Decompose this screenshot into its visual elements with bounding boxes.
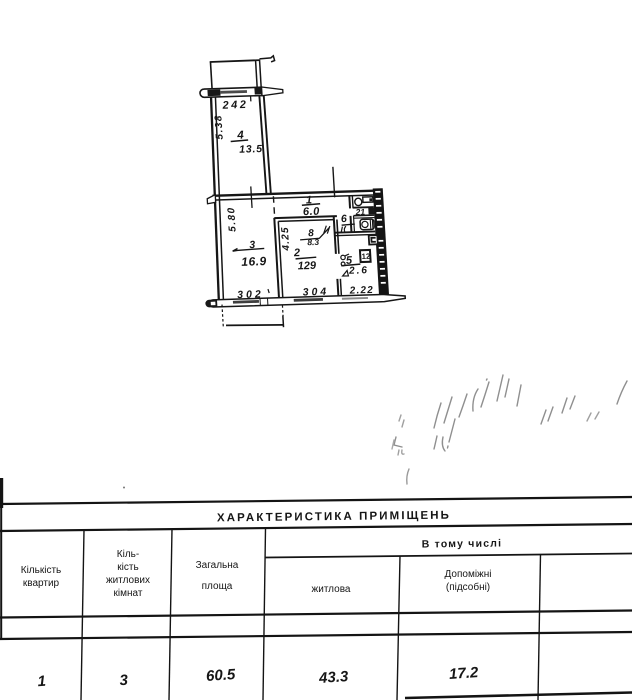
svg-text:6: 6 — [341, 213, 348, 225]
svg-text:13.5: 13.5 — [239, 143, 263, 156]
svg-text:житлова: житлова — [312, 584, 351, 595]
svg-text:3: 3 — [119, 672, 129, 690]
svg-text:Допоміжні: Допоміжні — [445, 569, 492, 580]
svg-text:2.6: 2.6 — [348, 265, 370, 277]
svg-text:кість: кість — [117, 562, 138, 573]
svg-text:5.80: 5.80 — [226, 206, 238, 232]
svg-text:242: 242 — [221, 99, 249, 112]
svg-text:2: 2 — [293, 247, 301, 259]
svg-text:129: 129 — [297, 260, 317, 273]
svg-text:2.22: 2.22 — [348, 285, 374, 297]
svg-text:21: 21 — [354, 207, 365, 217]
svg-text:4.25: 4.25 — [280, 226, 292, 252]
svg-text:(підсобні): (підсобні) — [446, 581, 490, 593]
svg-text:житлових: житлових — [106, 575, 150, 586]
svg-text:кімнат: кімнат — [114, 588, 143, 599]
svg-text:Кіль-: Кіль- — [117, 549, 139, 560]
svg-text:Кількість: Кількість — [21, 565, 61, 576]
svg-text:ХАРАКТЕРИСТИКА ПРИМІЩЕНЬ: ХАРАКТЕРИСТИКА ПРИМІЩЕНЬ — [217, 510, 451, 525]
svg-text:1: 1 — [37, 673, 47, 691]
svg-text:43.3: 43.3 — [318, 668, 350, 687]
svg-text:квартир: квартир — [23, 578, 60, 589]
svg-text:площа: площа — [202, 581, 233, 592]
svg-text:Загальна: Загальна — [196, 560, 239, 571]
svg-text:60.5: 60.5 — [206, 666, 237, 685]
svg-text:8.3: 8.3 — [307, 237, 320, 247]
svg-text:16.9: 16.9 — [241, 254, 267, 269]
svg-text:В тому числі: В тому числі — [422, 538, 503, 551]
svg-text:17.2: 17.2 — [449, 664, 480, 683]
svg-text:12: 12 — [361, 252, 371, 261]
svg-text:5.38: 5.38 — [213, 114, 225, 140]
svg-text:302: 302 — [237, 288, 264, 301]
svg-text:304: 304 — [302, 286, 329, 299]
